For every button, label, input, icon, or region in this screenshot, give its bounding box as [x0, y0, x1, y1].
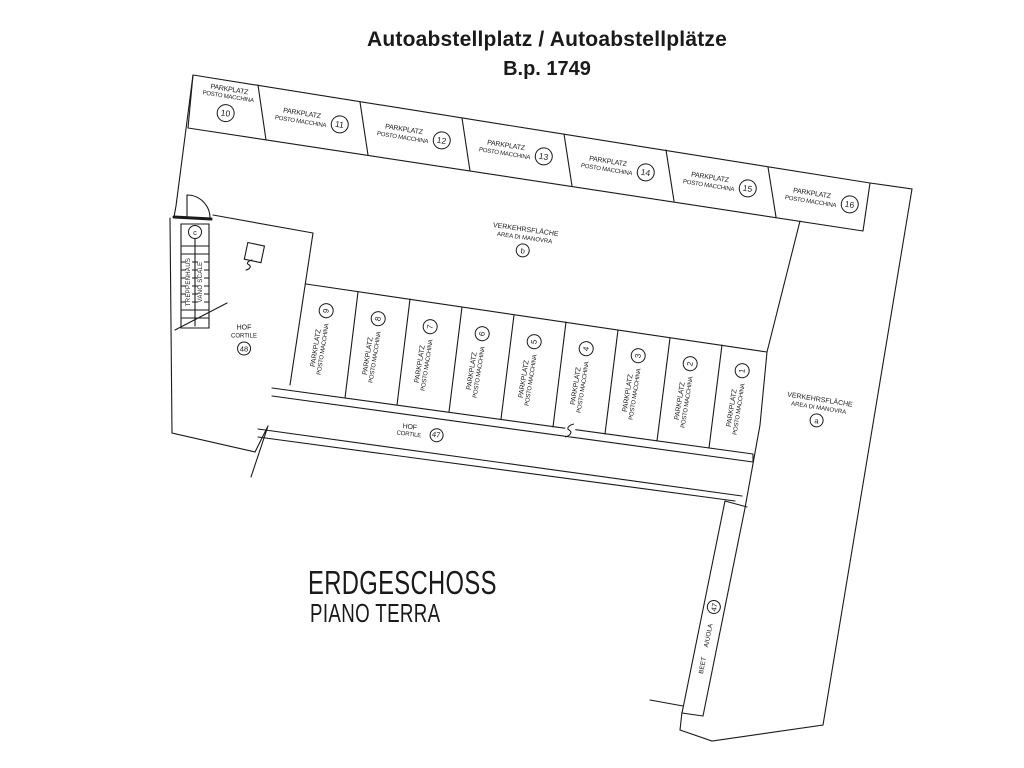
stall-number-badge: 16: [839, 194, 860, 215]
vano-scale-text: VANO SCALE: [198, 261, 204, 304]
stall-number-badge: 13: [533, 146, 554, 167]
stall-number-badge: 9: [318, 302, 335, 319]
stall-number-badge: 4: [578, 340, 595, 357]
stall-number-badge: 14: [635, 162, 656, 183]
area-id-badge: b: [515, 243, 531, 259]
stall-number-badge: 10: [215, 102, 236, 123]
area-id-badge: 48: [237, 342, 251, 356]
break-symbol-small: [246, 260, 252, 270]
stall-number-badge: 1: [734, 362, 751, 379]
stall-number-badge: 11: [329, 114, 350, 135]
floor-name-it: PIANO TERRA: [310, 598, 441, 629]
floor-plan-drawing: [0, 0, 1024, 768]
stall-number-badge: 6: [474, 325, 491, 342]
stair-rail: [175, 303, 227, 330]
wall-segment: [174, 217, 211, 219]
floor-plan-page: Autoabstellplatz / Autoabstellplätze B.p…: [0, 0, 1024, 768]
floor-name-de: ERDGESCHOSS: [308, 564, 497, 602]
title-line1: Autoabstellplatz / Autoabstellplätze: [287, 28, 807, 52]
stall-number-badge: 3: [630, 347, 647, 364]
area-id-badge: 47: [706, 599, 722, 615]
treppenhaus-text: TREPPENHAUS: [186, 257, 192, 307]
aiuola-text: AIUOLA: [703, 623, 714, 648]
stair-id-badge: c: [188, 225, 202, 239]
area-id-badge: 47: [428, 427, 444, 443]
bed-strip: [650, 501, 747, 716]
area-id-badge: a: [809, 412, 825, 428]
door-arc: [187, 195, 210, 218]
beet-text: BEET: [697, 656, 707, 674]
drawing-title: Autoabstellplatz / Autoabstellplätze B.p…: [287, 28, 807, 81]
stall-number-badge: 12: [431, 130, 452, 151]
shaft-square-symbol: [244, 243, 264, 263]
courtyard-48-label: HOF CORTILE 48: [231, 325, 257, 356]
stall-number-badge: 7: [422, 318, 439, 335]
stall-number-badge: 15: [737, 178, 758, 199]
stall-number-badge: 8: [370, 310, 387, 327]
stall-number-badge: 2: [682, 355, 699, 372]
lower-wall-band: [258, 429, 742, 501]
title-line2: B.p. 1749: [287, 58, 807, 81]
cortile-text: CORTILE: [231, 334, 257, 340]
hof-text: HOF: [237, 325, 252, 332]
stall-number-badge: 5: [526, 333, 543, 350]
